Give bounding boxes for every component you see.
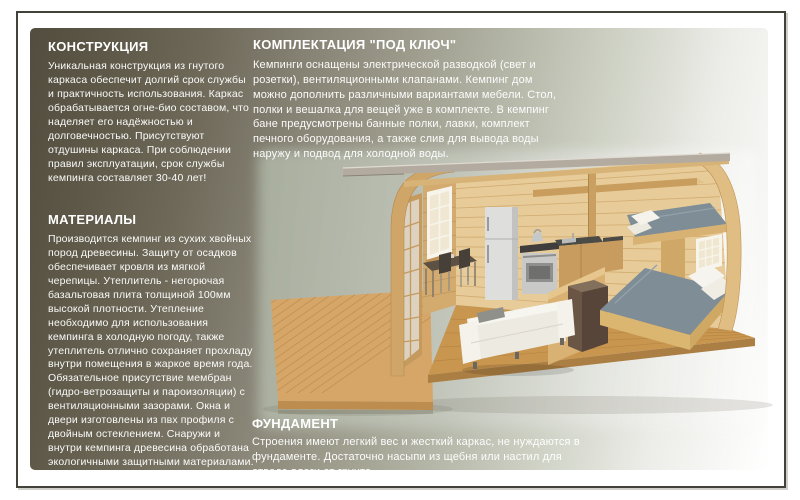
construction-title: КОНСТРУКЦИЯ (48, 40, 254, 54)
house-ground-shadow (393, 396, 773, 414)
fridge (485, 207, 518, 300)
foundation-title: ФУНДАМЕНТ (252, 417, 600, 431)
left-window (426, 186, 453, 263)
section-construction: КОНСТРУКЦИЯ Уникальная конструкция из гн… (48, 40, 254, 185)
section-materials: МАТЕРИАЛЫ Производится кемпинг из сухих … (48, 213, 254, 470)
foundation-body: Строения имеют легкий вес и жесткий карк… (252, 435, 600, 479)
section-foundation: ФУНДАМЕНТ Строения имеют легкий вес и же… (252, 417, 600, 480)
turnkey-title: КОМПЛЕКТАЦИЯ "ПОД КЛЮЧ" (253, 38, 568, 52)
brochure-page: { "page": { "kind": "camping house broch… (0, 0, 800, 500)
house-cutaway-illustration (263, 143, 783, 433)
materials-title: МАТЕРИАЛЫ (48, 213, 254, 227)
turnkey-body: Кемпинги оснащены электрической разводко… (253, 58, 568, 162)
section-turnkey: КОМПЛЕКТАЦИЯ "ПОД КЛЮЧ" Кемпинги оснащен… (253, 38, 568, 162)
side-cabinet (603, 236, 623, 272)
construction-body: Уникальная конструкция из гнутого каркас… (48, 60, 254, 185)
materials-body: Производится кемпинг из сухих хвойных по… (48, 233, 254, 469)
